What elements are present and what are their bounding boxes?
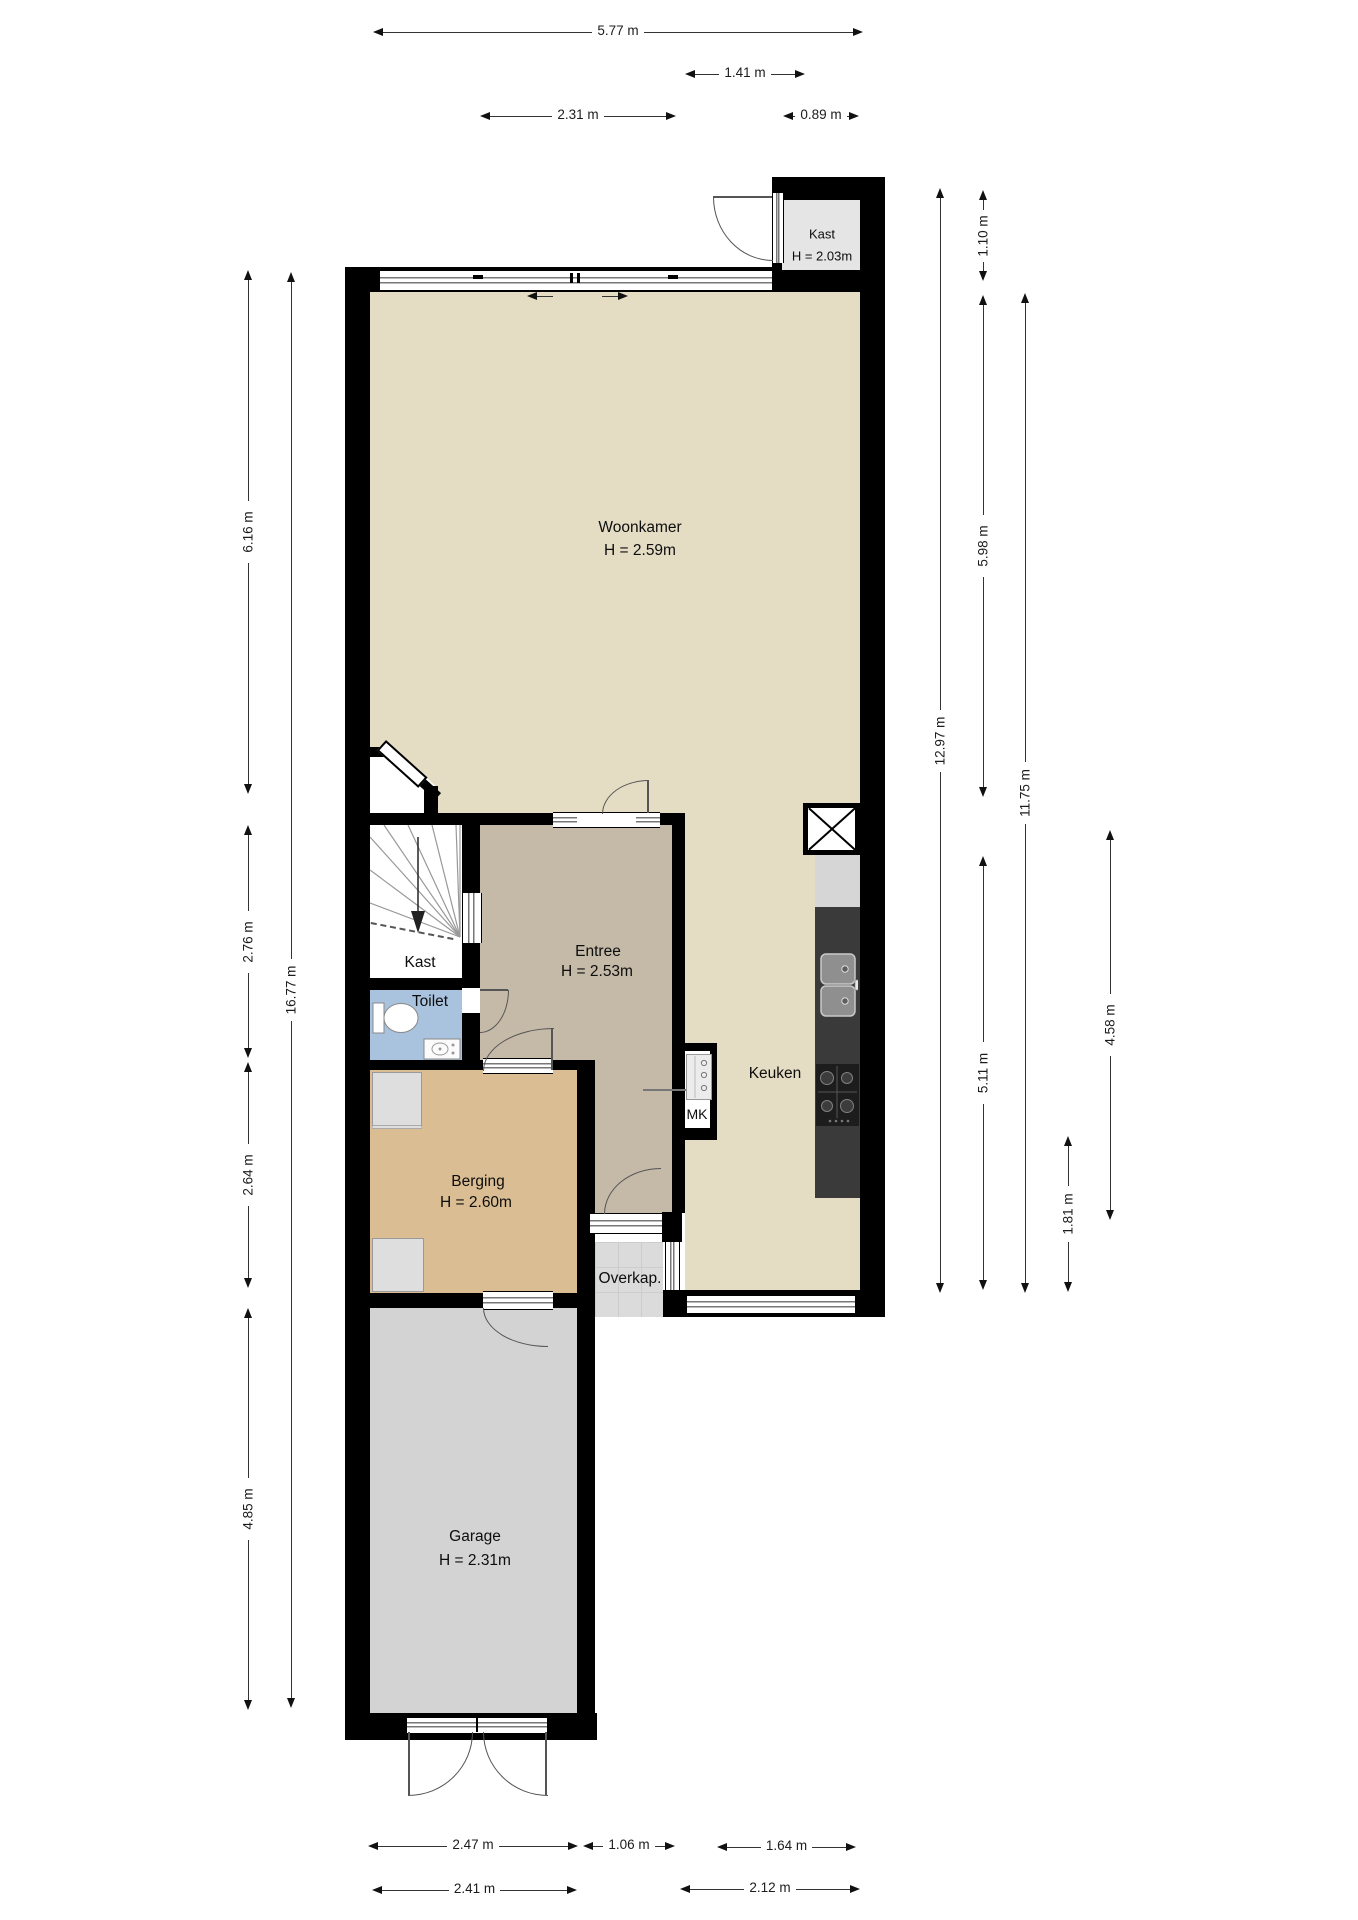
overkap-corner-wall-top (662, 1212, 682, 1242)
dim-right-11-75: 11.75 m (1017, 293, 1033, 1293)
dim-right-5-11: 5.11 m (975, 856, 991, 1290)
dim-left-16-77: 16.77 m (283, 272, 299, 1708)
kast-boven-door-arc (713, 197, 773, 261)
toilet-door-gap (462, 988, 480, 1013)
overkap-label: Overkap. (599, 1270, 662, 1288)
berging-south-wall (345, 1293, 595, 1308)
garage-right-door-leaf (545, 1732, 547, 1795)
stairs-icon (370, 825, 462, 940)
entree-west-wall (462, 825, 480, 1070)
dim-left-2-64: 2.64 m (240, 1062, 256, 1288)
entree-height-label: H = 2.53m (561, 963, 633, 981)
dim-right-12-97: 12.97 m (932, 188, 948, 1293)
garage-left-door-leaf (408, 1732, 410, 1795)
kast-boven-bottom-wall (772, 270, 860, 292)
overkap-corner-wall-bottom (663, 1290, 680, 1317)
woonkamer-north-window (380, 270, 772, 291)
dim-right-1-81: 1.81 m (1060, 1136, 1076, 1292)
berging-height-label: H = 2.60m (440, 1194, 512, 1212)
garage-right-door-arc (483, 1732, 548, 1796)
toilet-sink-icon (423, 1038, 461, 1060)
fridge-cabinet (815, 855, 860, 909)
window-mullion-center-b (577, 273, 580, 283)
kast-boven-door (772, 193, 784, 263)
entree-north-door-leafgap (577, 814, 636, 824)
woonkamer-label: Woonkamer (598, 519, 681, 537)
dim-left-2-76: 2.76 m (240, 825, 256, 1058)
overkap-keuken-window (665, 1242, 680, 1290)
trap-door-band (462, 893, 482, 943)
kitchen-sink-icon (818, 952, 858, 1018)
keuken-label: Keuken (749, 1065, 802, 1083)
mk-label: MK (687, 1106, 708, 1122)
berging-appliance-top (372, 1072, 422, 1129)
garage-height-label: H = 2.31m (439, 1552, 511, 1570)
dim-top-1-41: 1.41 m (685, 66, 805, 82)
dim-bottom-2-12: 2.12 m (680, 1881, 860, 1897)
garage-label: Garage (449, 1528, 501, 1546)
keuken-south-window (687, 1295, 855, 1314)
berging-appliance-bottom (372, 1238, 424, 1292)
floorplan-canvas: Woonkamer H = 2.59m Kast H = 2.03m Entre… (0, 0, 1358, 1920)
hob-icon (816, 1064, 859, 1126)
berging-entree-door-leaf (551, 1028, 553, 1070)
dim-bottom-2-41: 2.41 m (372, 1882, 577, 1898)
kitchen-counter (815, 907, 860, 1198)
kast-boven-height-label: H = 2.03m (792, 249, 852, 264)
dim-left-6-16: 6.16 m (240, 270, 256, 794)
dim-right-5-98: 5.98 m (975, 295, 991, 797)
toilet-north-wall (370, 978, 462, 990)
dim-right-4-58: 4.58 m (1102, 830, 1118, 1220)
meter-panel-icon (686, 1054, 712, 1100)
right-outer-wall (860, 177, 885, 1317)
dim-right-1-10: 1.10 m (975, 190, 991, 281)
garage-floor (370, 1308, 580, 1713)
window-mullion-right (668, 275, 678, 279)
garage-doors-center-post (476, 1717, 478, 1732)
entree-label: Entree (575, 943, 621, 961)
dim-top-5-77: 5.77 m (373, 24, 863, 40)
shaft-x-icon (803, 803, 860, 855)
toilet-door-leaf (480, 989, 508, 991)
arrow-right-icon (618, 292, 628, 300)
dim-top-2-31: 2.31 m (480, 108, 676, 124)
window-mullion-center-a (570, 273, 573, 283)
dim-top-0-89: 0.89 m (783, 108, 859, 124)
arrow-left-icon (527, 292, 537, 300)
niche-side-wall (424, 786, 438, 814)
toilet-label: Toilet (412, 993, 448, 1011)
dim-bottom-1-06: 1.06 m (583, 1838, 675, 1854)
slider-arrow-left (527, 288, 553, 304)
achterdeur-band (590, 1213, 662, 1234)
dim-bottom-1-64: 1.64 m (717, 1839, 856, 1855)
mk-south-wall (672, 1128, 717, 1140)
garage-left-door-arc (408, 1732, 473, 1796)
dim-bottom-2-47: 2.47 m (368, 1838, 578, 1854)
kast-boven-label: Kast (809, 227, 835, 242)
kast-boven-door-leaf (713, 196, 772, 198)
woonkamer-height-label: H = 2.59m (604, 542, 676, 560)
mk-leader-line (643, 1089, 686, 1091)
dim-left-4-85: 4.85 m (240, 1308, 256, 1710)
entree-east-wall (672, 825, 685, 1213)
window-mullion-left (473, 275, 483, 279)
berging-east-wall (577, 1060, 595, 1740)
woonkamer-entree-door-leaf (647, 780, 649, 813)
slider-arrow-right (602, 288, 628, 304)
kast-trap-label: Kast (404, 954, 435, 972)
berging-label: Berging (451, 1173, 504, 1191)
left-outer-wall (345, 267, 370, 1740)
